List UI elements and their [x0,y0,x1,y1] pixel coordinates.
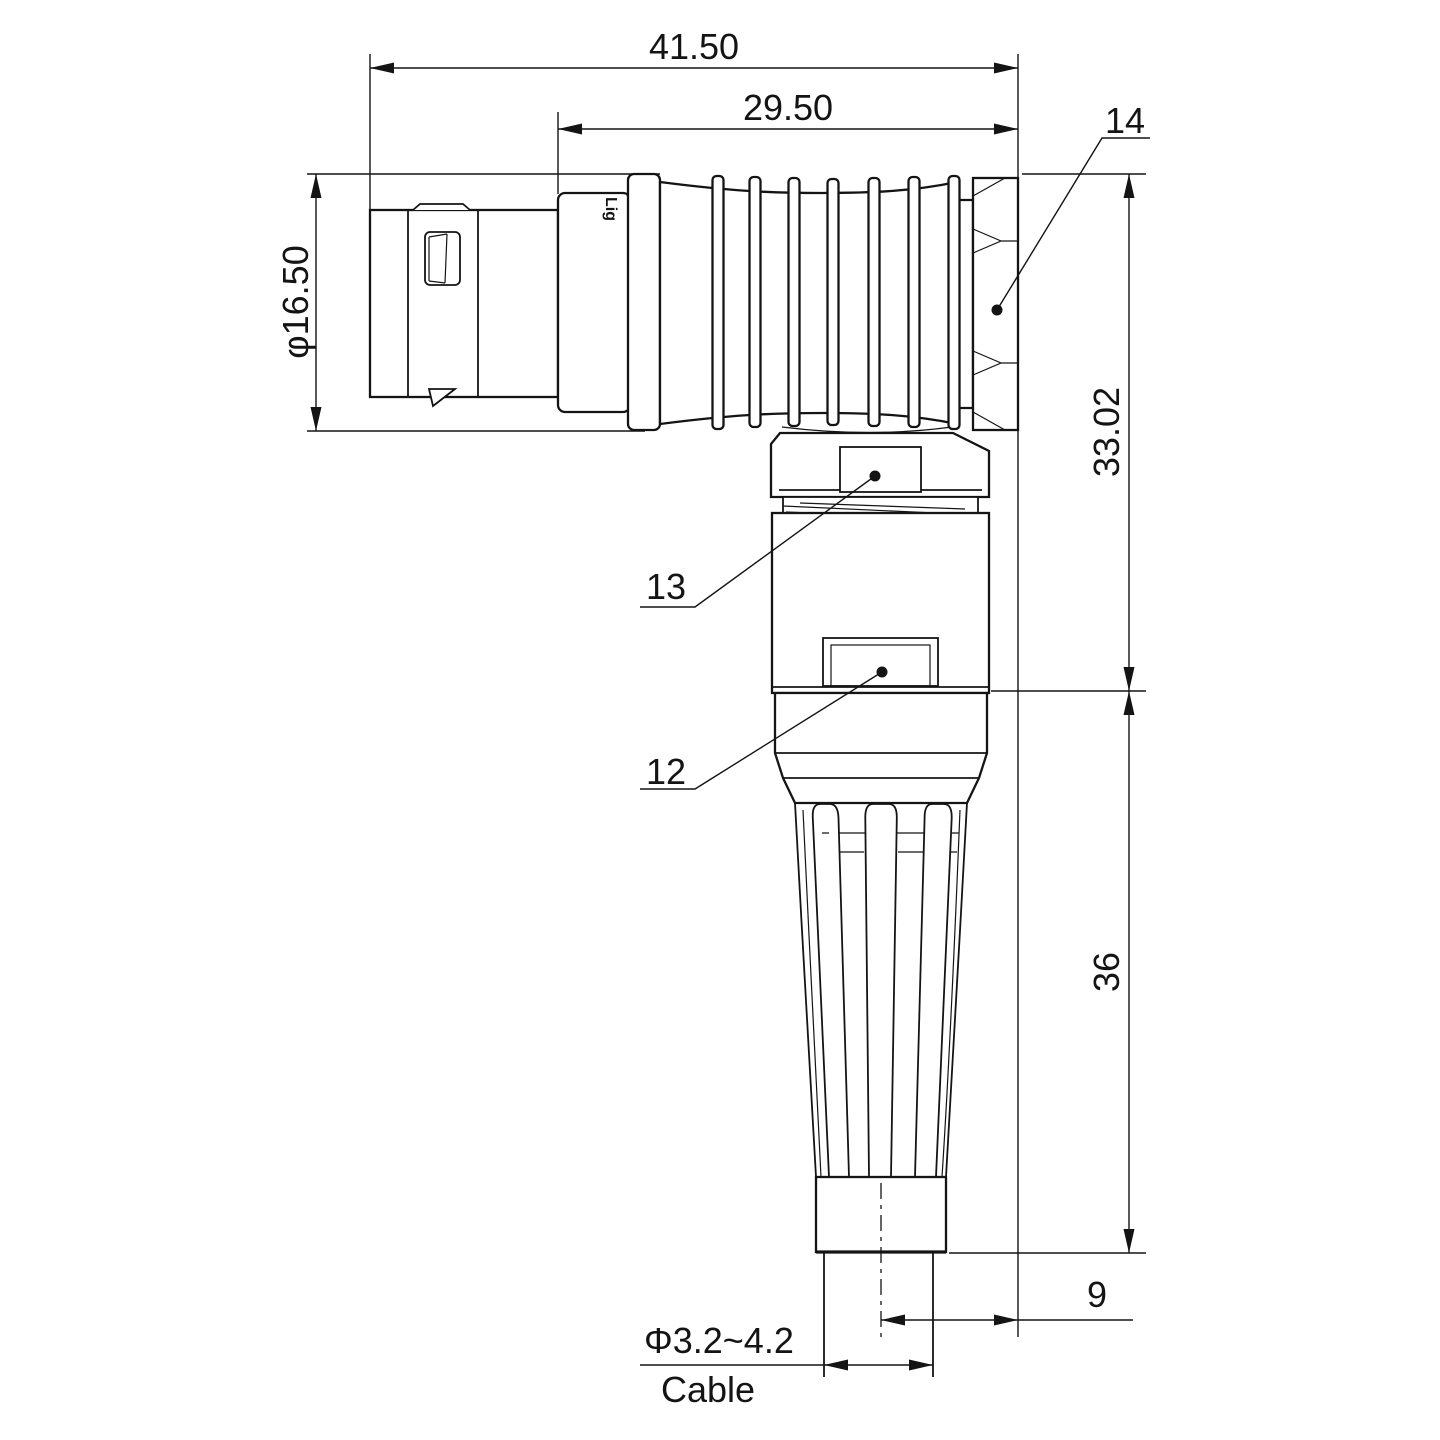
plug-keyway-window [425,232,460,285]
label-13-text: 13 [646,566,686,607]
dim-lower-height-text: 36 [1086,952,1127,992]
label-12-text: 12 [646,751,686,792]
grip-section [660,176,973,433]
label-14-dot [992,305,1003,316]
dim-body-length-text: 29.50 [743,87,833,128]
grip-rib [869,178,880,426]
grip-rib [713,176,724,429]
hex-nut [973,178,1018,430]
grip-rib [828,179,839,425]
dim-cable-stub: 9 [881,1274,1133,1326]
grip-rib [909,177,920,427]
dim-front-diameter-text: φ16.50 [275,245,316,358]
boot-finger [865,804,897,1177]
label-13-dot [870,471,881,482]
elbow-collar [771,433,989,497]
technical-drawing-page: Lightany Lig [0,0,1440,1440]
dim-upper-height-text: 33.02 [1086,387,1127,477]
dim-cable-diameter: Φ3.2~4.2 Cable [640,1320,933,1410]
boot-finger [915,804,952,1177]
cable-label-text: Cable [661,1369,755,1410]
elbow-assembly [771,433,989,1377]
lower-taper [775,693,987,803]
grip-rib [789,178,800,426]
connector-technical-drawing: Lightany Lig [0,0,1440,1440]
dim-cable-stub-text: 9 [1087,1274,1107,1315]
elbow-body [772,513,989,693]
plug-front-barrel [370,204,558,406]
connector-side-view: Lig [370,174,1018,433]
strain-relief-boot [795,803,967,1177]
dim-overall-length-text: 41.50 [649,26,739,67]
mid-barrel: Lig [558,193,630,412]
dim-cable-diameter-text: Φ3.2~4.2 [644,1320,794,1361]
elbow-fillet [782,427,952,433]
cable [824,1252,933,1377]
grip-rib [750,177,761,427]
collar-latch [840,447,921,492]
grip-ring [628,174,660,430]
label-14-leader [997,138,1150,310]
grip-rib [949,176,960,429]
plug-key-bump [413,204,470,210]
label-12-dot [877,667,888,678]
brand-engraving: Lig [602,197,619,221]
label-14-text: 14 [1105,100,1145,141]
